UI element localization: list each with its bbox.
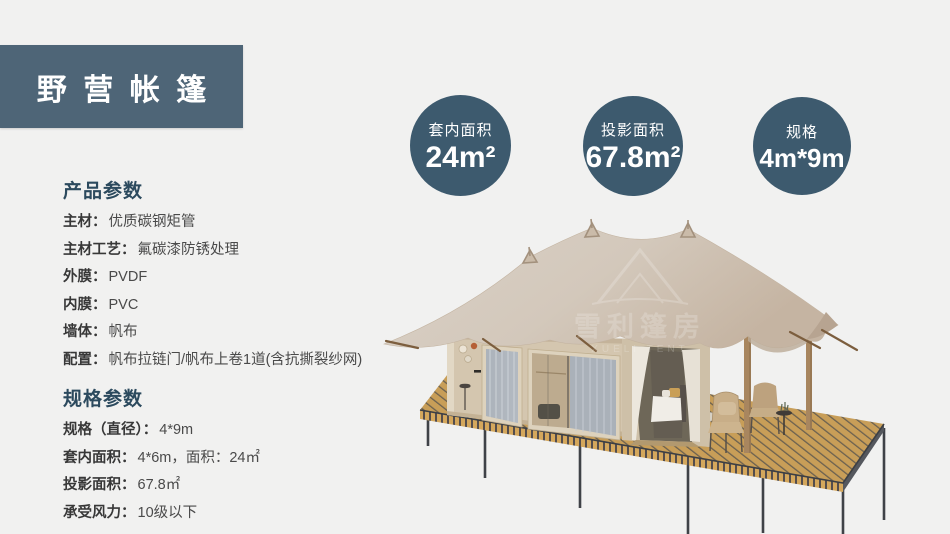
stat-value: 67.8m²: [585, 143, 680, 173]
bedroom-opening: [622, 339, 710, 447]
stat-circle-inner-area: 套内面积 24m²: [410, 95, 511, 196]
stat-circle-size: 规格 4m*9m: [753, 97, 851, 195]
stat-label: 投影面积: [601, 119, 665, 140]
spec-params-section: 规格参数 规格（直径）：4*9m 套内面积：4*6m，面积：24㎡ 投影面积：6…: [63, 384, 403, 533]
param-row: 主材：优质碳钢矩管: [63, 215, 403, 230]
param-row: 外膜：PVDF: [63, 270, 403, 285]
stat-label: 规格: [786, 121, 818, 142]
spec-row: 规格（直径）：4*9m: [63, 423, 403, 438]
param-row: 主材工艺：氟碳漆防锈处理: [63, 243, 403, 258]
stat-label: 套内面积: [428, 119, 492, 140]
product-title-banner: 野营帐篷: [0, 45, 243, 128]
param-row: 墙体：帆布: [63, 325, 403, 340]
bed: [651, 396, 684, 422]
stat-value: 4m*9m: [759, 145, 844, 171]
stat-circle-projection-area: 投影面积 67.8m²: [583, 96, 683, 196]
bed-pillow: [669, 388, 680, 397]
spec-row: 承受风力：10级以下: [63, 506, 403, 521]
cabin-window-right: [528, 349, 620, 440]
product-params-section: 产品参数 主材：优质碳钢矩管 主材工艺：氟碳漆防锈处理 外膜：PVDF 内膜：P…: [63, 176, 403, 380]
cabin-window-left: [482, 345, 522, 427]
spec-row: 投影面积：67.8㎡: [63, 478, 403, 493]
stat-value: 24m²: [425, 143, 495, 173]
wall-hook: [474, 370, 481, 373]
section-heading-spec-params: 规格参数: [63, 384, 403, 411]
watermark-text-en: XUELI TENT: [591, 344, 689, 355]
spec-row: 套内面积：4*6m，面积：24㎡: [63, 451, 403, 466]
section-heading-product-params: 产品参数: [63, 176, 403, 203]
tent-illustration: 雪利篷房 XUELI TENT: [370, 200, 950, 534]
watermark-text-cn: 雪利篷房: [574, 311, 706, 342]
param-row: 配置：帆布拉链门/帆布上卷1道(含抗撕裂纱网): [63, 353, 403, 368]
param-row: 内膜：PVC: [63, 298, 403, 313]
page: 野营帐篷 套内面积 24m² 投影面积 67.8m² 规格 4m*9m 产品参数…: [0, 0, 950, 534]
tent-roof: 雪利篷房 XUELI TENT: [384, 219, 857, 355]
page-title: 野营帐篷: [20, 65, 223, 109]
tent-render-image: 雪利篷房 XUELI TENT: [370, 200, 950, 534]
